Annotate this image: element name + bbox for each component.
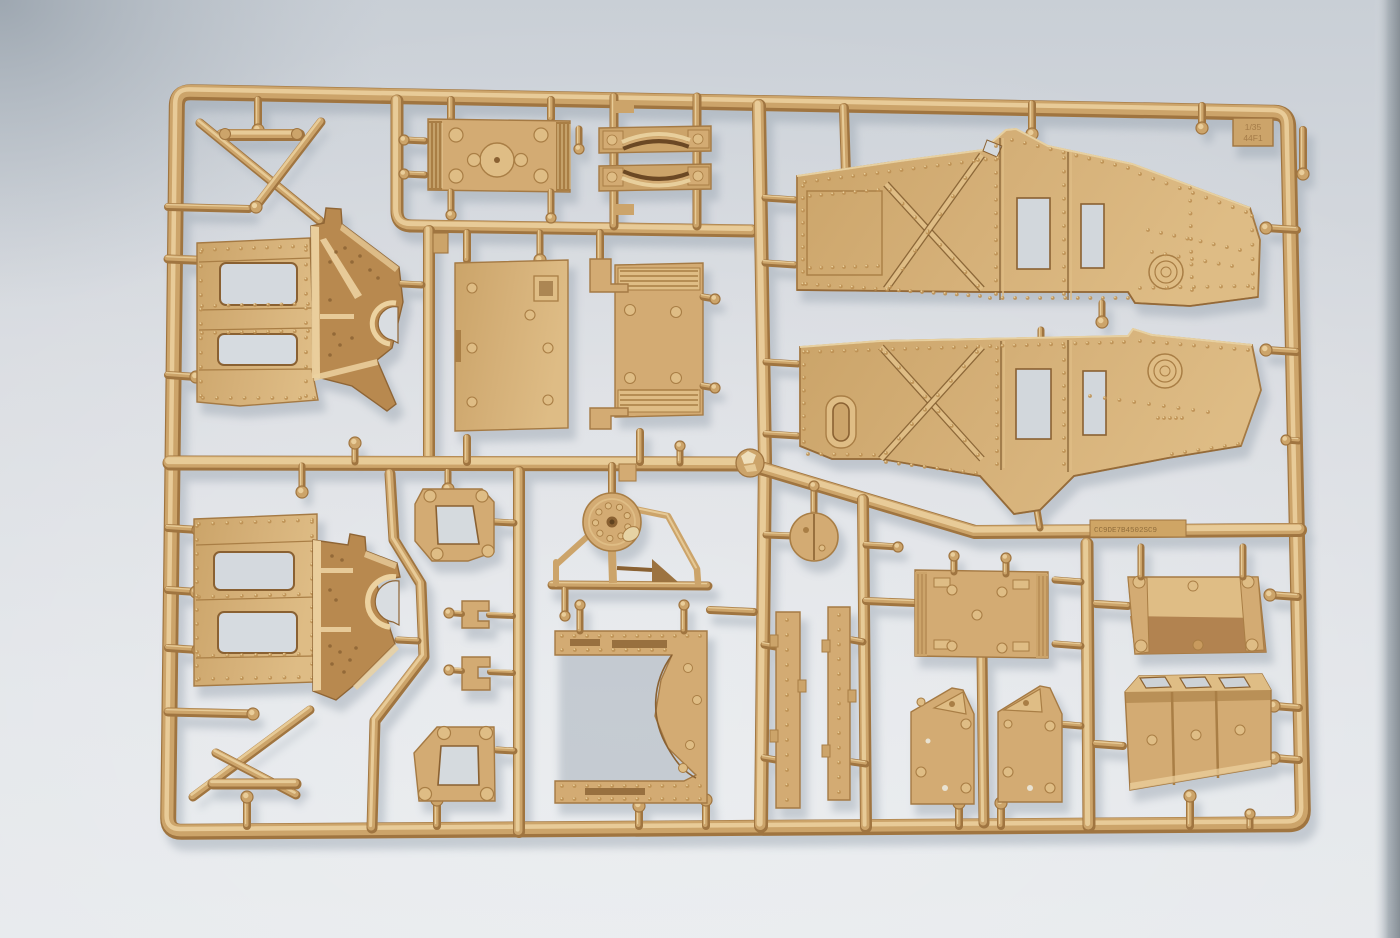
svg-text:1/35: 1/35 [1245,122,1262,132]
svg-text:CC9DE7B4502SC9: CC9DE7B4502SC9 [1094,527,1157,535]
svg-text:44F1: 44F1 [1243,133,1263,143]
